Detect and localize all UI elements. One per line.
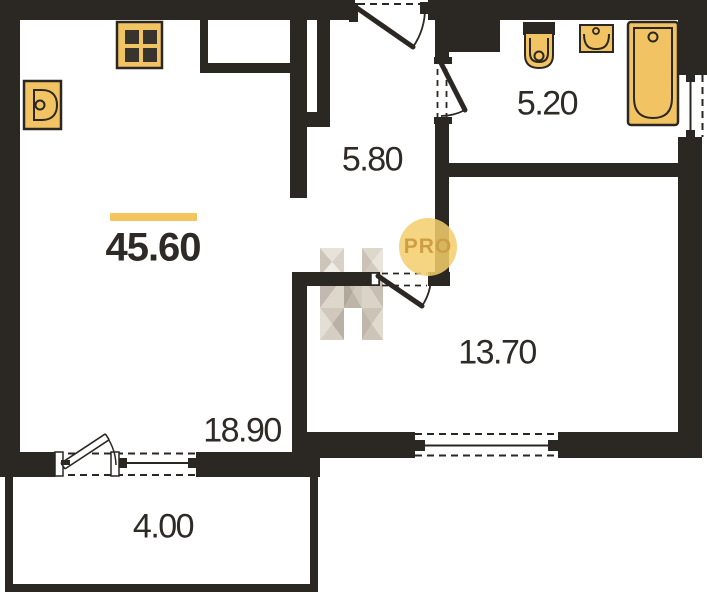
toilet-icon bbox=[523, 22, 555, 68]
room-area-label-balcony: 4.00 bbox=[133, 508, 193, 547]
room-area-label-kitchen-living: 18.90 bbox=[203, 412, 281, 451]
entrance-door bbox=[349, 2, 428, 47]
pro-watermark-text: PRO bbox=[404, 235, 453, 259]
bathtub-icon bbox=[628, 22, 678, 125]
total-area-accent-line bbox=[110, 213, 197, 221]
h-logo-watermark bbox=[320, 248, 383, 340]
room-area-label-bedroom: 13.70 bbox=[458, 334, 536, 373]
floor-plan-drawing bbox=[0, 0, 707, 600]
room-area-label-bathroom: 5.20 bbox=[517, 85, 577, 124]
washbasin-icon bbox=[580, 25, 613, 52]
total-area-label: 45.60 bbox=[105, 226, 200, 271]
bathroom-window bbox=[686, 75, 703, 137]
floor-plan: 45.60 5.80 5.20 13.70 18.90 4.00 PRO bbox=[0, 0, 707, 600]
bathroom-door bbox=[434, 57, 465, 124]
stove-icon bbox=[117, 22, 162, 68]
balcony-door-window bbox=[55, 434, 196, 476]
pro-watermark-badge: PRO bbox=[399, 218, 457, 276]
kitchen-sink-icon bbox=[24, 81, 61, 129]
bedroom-window bbox=[415, 434, 558, 456]
room-area-label-hallway: 5.80 bbox=[342, 141, 402, 180]
